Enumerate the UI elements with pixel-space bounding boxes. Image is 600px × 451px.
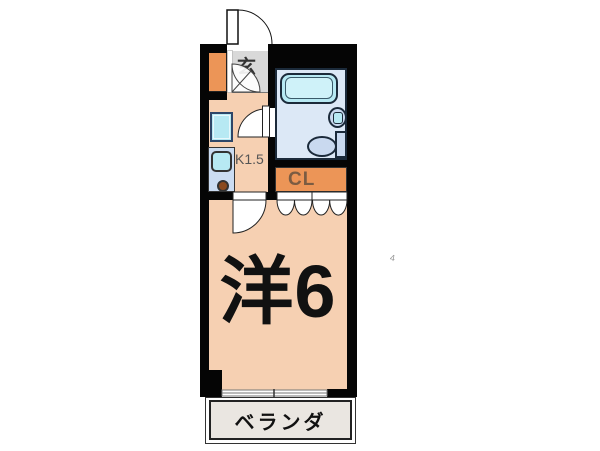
- bathtub-inner: [285, 77, 333, 99]
- wall: [268, 168, 275, 192]
- wall: [347, 44, 357, 397]
- scan-artifact: 4: [389, 253, 396, 264]
- floor-plan: 洋6 CL K1.5 玄 ベランダ 4: [0, 0, 600, 451]
- wall: [268, 68, 275, 108]
- kitchen-sink: [211, 151, 232, 172]
- main-room: 洋6: [209, 200, 347, 390]
- washbasin-bowl: [333, 112, 343, 124]
- kitchen-label: K1.5: [235, 151, 264, 167]
- wall: [327, 389, 347, 397]
- balcony: ベランダ: [209, 400, 352, 440]
- wall: [207, 92, 227, 100]
- toilet: [307, 136, 337, 157]
- wall: [200, 370, 222, 397]
- shoe-cabinet: [207, 52, 227, 92]
- closet: CL: [275, 167, 347, 192]
- entrance-label: 玄: [237, 52, 256, 79]
- stove-burner: [217, 180, 229, 192]
- wall: [268, 137, 275, 160]
- wall: [200, 192, 233, 200]
- wall: [266, 192, 277, 200]
- kitchen-window-glass: [213, 115, 230, 139]
- wall: [268, 44, 347, 68]
- balcony-label: ベランダ: [235, 406, 327, 435]
- main-room-label: 洋6: [219, 255, 336, 329]
- sliding-window: [222, 389, 327, 397]
- toilet-tank: [335, 131, 347, 158]
- closet-label: CL: [288, 169, 315, 191]
